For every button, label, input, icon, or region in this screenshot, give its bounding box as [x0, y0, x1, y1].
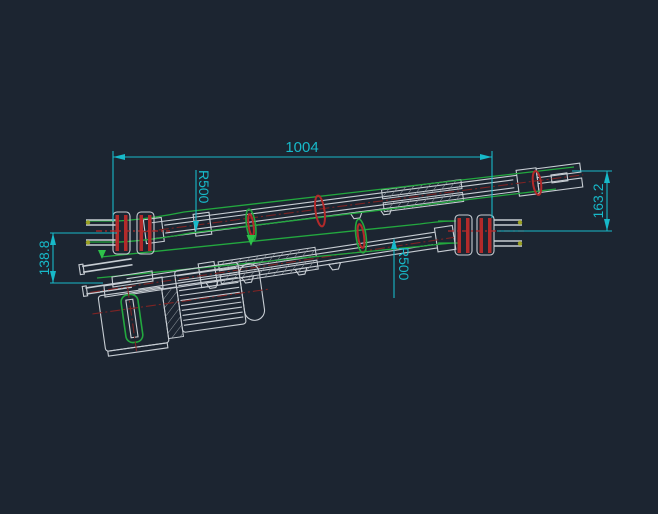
roller-flange: [124, 215, 128, 251]
roller-flange: [480, 218, 484, 253]
shaft-end-dot: [518, 241, 522, 245]
dim-radius-bottom-label[interactable]: R500: [396, 247, 412, 281]
roller-flange: [458, 218, 462, 253]
model-space-background: [0, 0, 658, 514]
roller-flange: [466, 218, 470, 253]
dim-height-left-label[interactable]: 138.8: [36, 240, 52, 275]
roller-flange: [148, 215, 152, 251]
drawing-canvas[interactable]: 1004 R500 R500 163.2 138.8: [0, 0, 658, 514]
roller-flange: [140, 215, 144, 251]
shaft-end-dot: [86, 220, 90, 224]
cad-viewport[interactable]: 1004 R500 R500 163.2 138.8: [0, 0, 658, 514]
dim-radius-top-label[interactable]: R500: [196, 170, 212, 204]
shaft-end-dot: [86, 240, 90, 244]
shaft-end-dot: [518, 220, 522, 224]
roller-flange: [488, 218, 492, 253]
dim-overall-length-label[interactable]: 1004: [285, 139, 318, 156]
dim-height-right-label[interactable]: 163.2: [590, 183, 606, 218]
